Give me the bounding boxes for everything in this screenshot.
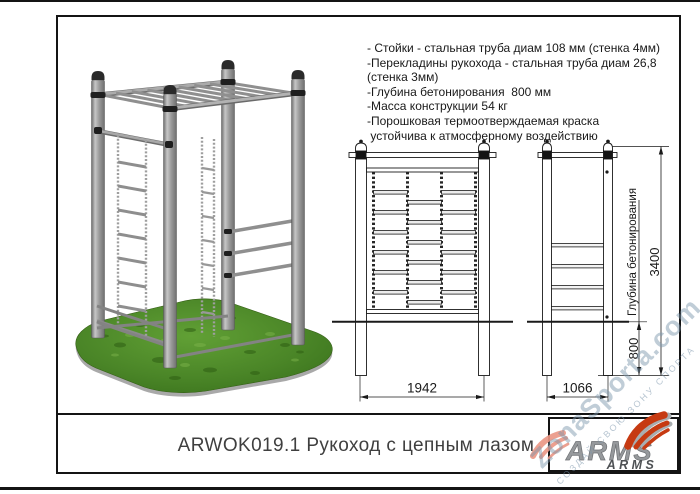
- dim-total-height: 3400: [647, 248, 662, 277]
- logo-swoosh-pink: [533, 433, 568, 458]
- chain-rungs: [374, 191, 476, 305]
- dim-side-width: 1066: [562, 381, 592, 396]
- front-view-drawing: 1942: [332, 140, 513, 401]
- dim-front-width: 1942: [407, 381, 437, 396]
- arms-logo: ARMS ARMS: [525, 410, 685, 476]
- side-rails: [228, 220, 298, 276]
- spec-text-block: - Стойки - стальная труба диам 108 мм (с…: [367, 41, 679, 143]
- clamp-collars: [91, 79, 306, 278]
- product-render-3d: [60, 50, 345, 400]
- spec-line: -Масса конструкции 54 кг: [367, 99, 679, 114]
- monkeybar-ladder: [92, 81, 304, 110]
- spec-line: - Стойки - стальная труба диам 108 мм (с…: [367, 41, 679, 56]
- logo-wordmark-small: ARMS: [606, 458, 658, 472]
- spec-line: -Глубина бетонирования 800 мм: [367, 85, 679, 100]
- dim-foundation-depth: 800: [626, 338, 641, 360]
- side-view-drawing: 1066 800 3400 Глубина бетонирования: [527, 140, 669, 401]
- side-rungs: [552, 244, 604, 310]
- spec-sheet-page: - Стойки - стальная труба диам 108 мм (с…: [0, 0, 700, 494]
- spec-line: -Перекладины рукохода - стальная труба д…: [367, 56, 679, 71]
- spec-line: -Порошковая термоотверждаемая краска: [367, 114, 679, 129]
- page-top-rule: [0, 0, 700, 2]
- technical-drawings: 1942: [325, 138, 677, 408]
- page-bottom-rule: [0, 487, 700, 490]
- spec-line: (стенка 3мм): [367, 70, 679, 85]
- label-foundation-depth: Глубина бетонирования: [627, 188, 639, 316]
